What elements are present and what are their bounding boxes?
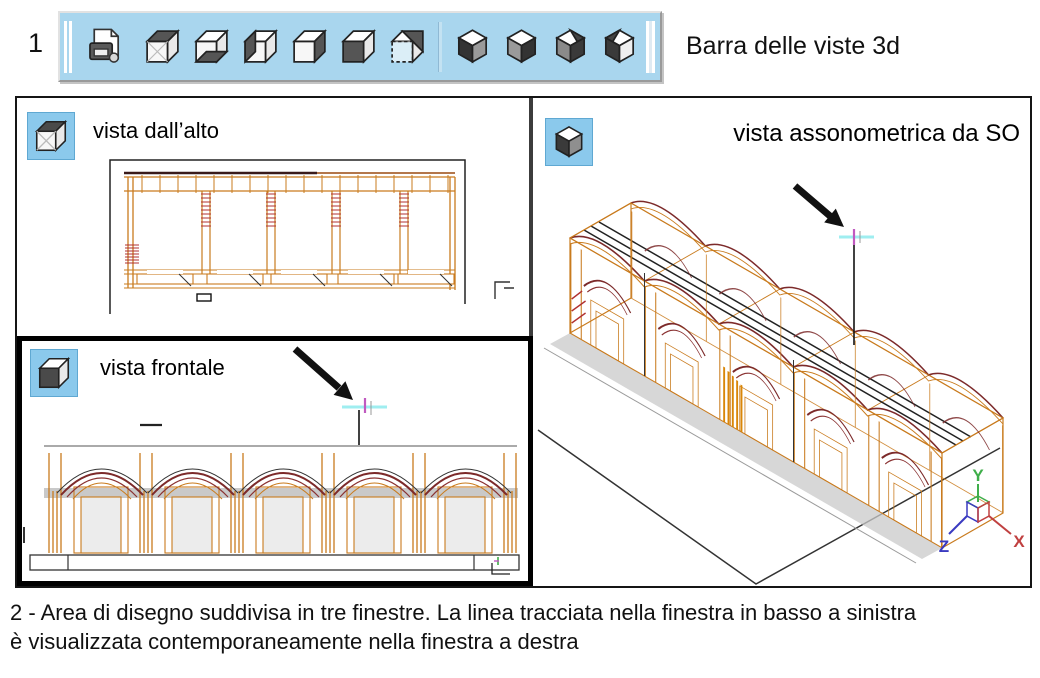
viewport-axonometric-view[interactable]: Y X Z vista assonometrica da SO (533, 98, 1030, 586)
toolbar-grip[interactable] (64, 21, 76, 73)
toolbar-caption: Barra delle viste 3d (686, 32, 900, 61)
figure-1-number: 1 (28, 28, 43, 59)
drawing-area: vista dall’alto (15, 96, 1032, 588)
axonometric-drawing: Y X Z (533, 98, 1030, 586)
figure-2-caption: 2 - Area di disegno suddivisa in tre fin… (10, 598, 1032, 656)
front-view-cube-icon (30, 349, 78, 397)
top-view-cube-icon[interactable] (139, 23, 186, 70)
nw-isometric-cube-icon[interactable] (596, 23, 643, 70)
caption-line-2: è visualizzata contemporaneamente nella … (10, 627, 1032, 656)
viewport-front-view[interactable]: vista frontale (17, 336, 533, 586)
se-isometric-cube-icon[interactable] (498, 23, 545, 70)
ucs-z-label: Z (939, 537, 949, 556)
named-views-icon[interactable] (81, 23, 128, 70)
views-3d-toolbar (58, 11, 662, 82)
caption-line-1: 2 - Area di disegno suddivisa in tre fin… (10, 598, 1032, 627)
sw-isometric-cube-icon[interactable] (449, 23, 496, 70)
top-view-cube-icon (27, 112, 75, 160)
ucs-x-label: X (1013, 532, 1025, 551)
iso-viewport-label: vista assonometrica da SO (733, 120, 1020, 148)
ucs-y-label: Y (972, 466, 984, 485)
left-view-cube-icon[interactable] (237, 23, 284, 70)
front-view-cube-icon[interactable] (335, 23, 382, 70)
bottom-view-cube-icon[interactable] (188, 23, 235, 70)
sw-isometric-cube-icon (545, 118, 593, 166)
right-view-cube-icon[interactable] (286, 23, 333, 70)
viewport-top-view[interactable]: vista dall’alto (17, 98, 533, 336)
front-viewport-label: vista frontale (100, 355, 225, 381)
front-view-drawing (22, 341, 528, 581)
toolbar-spacer (129, 23, 138, 70)
back-view-cube-icon[interactable] (384, 23, 431, 70)
top-viewport-label: vista dall’alto (93, 118, 219, 144)
cad-tutorial-figure: 1 (0, 0, 1040, 678)
ne-isometric-cube-icon[interactable] (547, 23, 594, 70)
toolbar-grip-right[interactable] (644, 21, 656, 73)
toolbar-separator (438, 22, 442, 72)
